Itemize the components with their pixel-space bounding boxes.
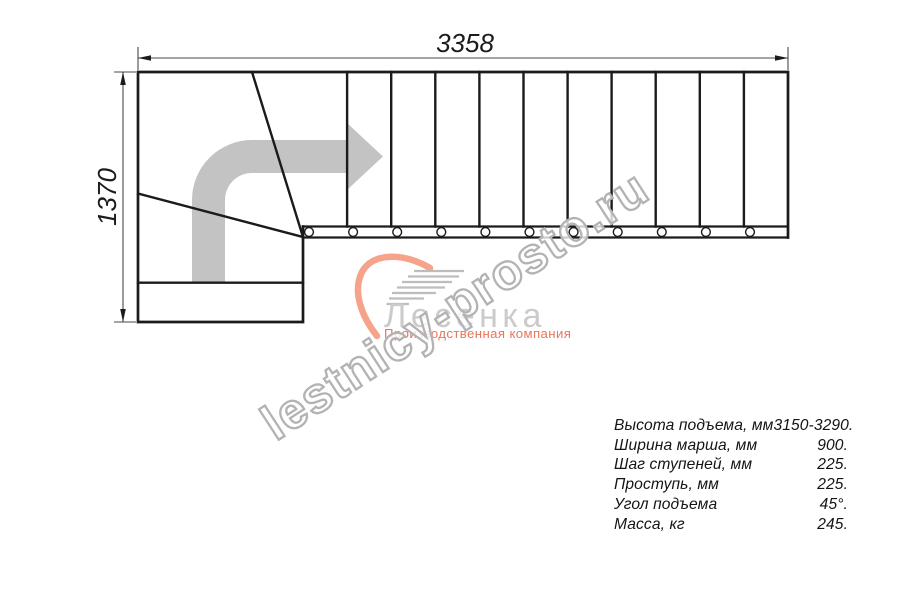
spec-value: 225. bbox=[817, 475, 848, 495]
baluster bbox=[393, 228, 402, 237]
spec-label: Проступь, мм bbox=[614, 475, 719, 495]
baluster bbox=[702, 228, 711, 237]
baluster bbox=[746, 228, 755, 237]
watermark-text: lestnicy-prosto.ru bbox=[251, 159, 658, 451]
spec-row-flight-width: Ширина марша, мм 900. bbox=[614, 436, 848, 456]
dim-arrowhead-left bbox=[138, 55, 151, 61]
spec-label: Ширина марша, мм bbox=[614, 436, 757, 456]
spec-label: Шаг ступеней, мм bbox=[614, 455, 752, 475]
spec-label: Масса, кг bbox=[614, 515, 685, 535]
spec-label: Угол подъема bbox=[614, 495, 717, 515]
spec-label: Высота подъема, мм bbox=[614, 416, 773, 436]
dimension-top-label: 3358 bbox=[436, 28, 494, 58]
spec-value: 3150-3290. bbox=[773, 416, 853, 436]
baluster bbox=[481, 228, 490, 237]
dimension-left: 1370 bbox=[92, 72, 136, 322]
spec-row-height: Высота подъема, мм 3150-3290. bbox=[614, 416, 848, 436]
spec-value: 45°. bbox=[820, 495, 848, 515]
spec-value: 225. bbox=[817, 455, 848, 475]
spec-row-tread-depth: Проступь, мм 225. bbox=[614, 475, 848, 495]
baluster bbox=[437, 228, 446, 237]
direction-arrow bbox=[192, 123, 383, 282]
tread-lines bbox=[347, 72, 744, 227]
dimension-left-label: 1370 bbox=[92, 168, 122, 226]
dim-arrowhead-right bbox=[775, 55, 788, 61]
spec-value: 245. bbox=[817, 515, 848, 535]
dim-arrowhead-bottom bbox=[120, 309, 126, 322]
spec-row-step-pitch: Шаг ступеней, мм 225. bbox=[614, 455, 848, 475]
drawing-canvas: 3358 1370 Лесенка Производственная компа… bbox=[0, 0, 900, 600]
baluster bbox=[349, 228, 358, 237]
spec-table: Высота подъема, мм 3150-3290. Ширина мар… bbox=[614, 416, 848, 534]
baluster bbox=[305, 228, 314, 237]
spec-value: 900. bbox=[817, 436, 848, 456]
spec-row-angle: Угол подъема 45°. bbox=[614, 495, 848, 515]
spec-row-mass: Масса, кг 245. bbox=[614, 515, 848, 535]
dim-arrowhead-top bbox=[120, 72, 126, 85]
dimension-top: 3358 bbox=[138, 28, 788, 70]
baluster bbox=[657, 228, 666, 237]
